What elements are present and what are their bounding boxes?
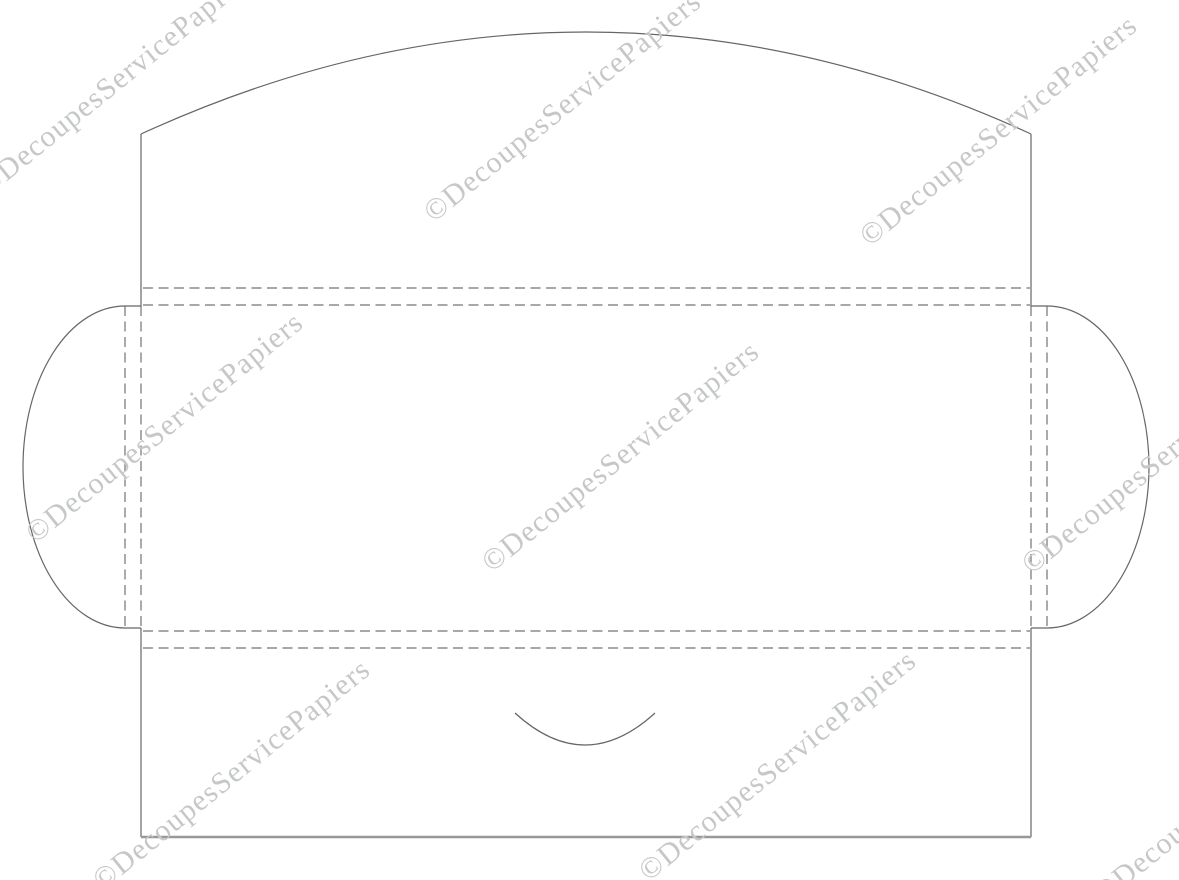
thumb-notch-arc <box>515 713 655 745</box>
envelope-cut-outline <box>23 32 1149 837</box>
envelope-template-canvas: ©DecoupesServicePapiers ©DecoupesService… <box>0 0 1179 880</box>
fold-guide-lines <box>125 288 1047 648</box>
envelope-dieline-drawing <box>0 0 1179 880</box>
